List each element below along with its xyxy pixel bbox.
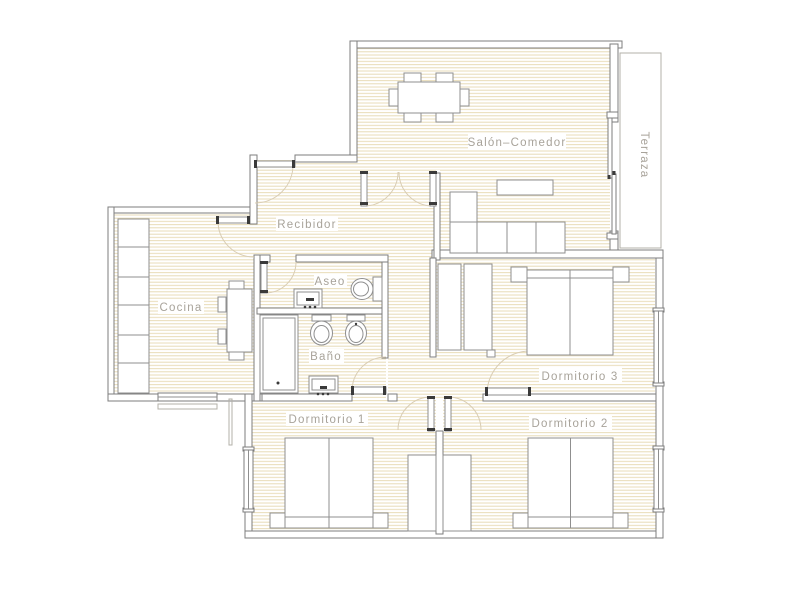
room-label-aseo: Aseo — [314, 276, 345, 288]
dorm2-bed — [528, 438, 613, 528]
dorm2-wardrobe — [443, 455, 471, 531]
dormitorio3-furniture — [438, 264, 629, 357]
kitchen-counter — [118, 219, 149, 393]
bano-toilet — [311, 315, 333, 345]
wall-bedrooms-top-b — [388, 394, 397, 401]
bano-bidet — [346, 315, 367, 345]
wall-aseo-top — [296, 255, 388, 262]
wall-cocina-left — [108, 207, 114, 401]
wall-entry — [295, 155, 357, 162]
dormitorio2-furniture — [513, 438, 628, 528]
wall-bottom — [245, 531, 663, 538]
dorm3-nightstand-left — [511, 267, 527, 282]
dormitorio2-window — [653, 446, 664, 512]
dormitorio3-window — [653, 308, 664, 386]
room-label-terraza: Terraza — [638, 132, 650, 179]
dorm1-nightstand-left — [270, 513, 285, 528]
dormitorio1-window — [243, 447, 254, 512]
dorm1-nightstand-right — [373, 513, 388, 528]
floor-plan-drawing: Salón–Comedor Terraza Recibidor Cocina A… — [0, 0, 800, 600]
wall-dorm-divider — [436, 431, 443, 534]
room-label-salon: Salón–Comedor — [468, 137, 567, 149]
dorm1-wardrobe — [408, 455, 436, 531]
room-label-dormitorio1: Dormitorio 1 — [288, 414, 365, 426]
room-label-dormitorio2: Dormitorio 2 — [531, 418, 608, 430]
room-label-dormitorio3: Dormitorio 3 — [541, 371, 618, 383]
room-label-bano: Baño — [310, 351, 342, 363]
wall-bano-right — [382, 262, 388, 358]
dormitorio1-furniture — [270, 438, 388, 528]
shower — [260, 315, 298, 393]
room-label-recibidor: Recibidor — [277, 219, 336, 231]
wall-cocina-top — [108, 207, 250, 213]
wall-salon-top — [350, 41, 622, 48]
floor-plan-page: Salón–Comedor Terraza Recibidor Cocina A… — [0, 0, 800, 600]
wall-bedrooms-top-a — [262, 394, 352, 401]
dorm1-bed — [285, 438, 373, 528]
wall-aseo-bano-divider — [257, 308, 388, 314]
cocina-window — [158, 393, 217, 409]
tv-bench — [497, 180, 553, 195]
wall-cocina-right — [254, 255, 260, 401]
dorm2-nightstand-right — [613, 513, 628, 528]
dorm3-bed — [527, 270, 613, 355]
aseo-washbasin — [294, 289, 322, 308]
dorm3-wardrobe — [438, 264, 495, 357]
aseo-toilet — [351, 277, 382, 301]
bano-washbasin — [309, 376, 338, 395]
wall-salon-left — [350, 41, 357, 162]
wall-corridor-dorm3 — [430, 258, 436, 357]
room-label-cocina: Cocina — [160, 302, 203, 314]
dorm2-nightstand-left — [513, 513, 528, 528]
wall-salon-right-upper — [610, 44, 618, 122]
dorm3-nightstand-right — [613, 267, 629, 282]
exterior-edge-line — [229, 399, 232, 445]
